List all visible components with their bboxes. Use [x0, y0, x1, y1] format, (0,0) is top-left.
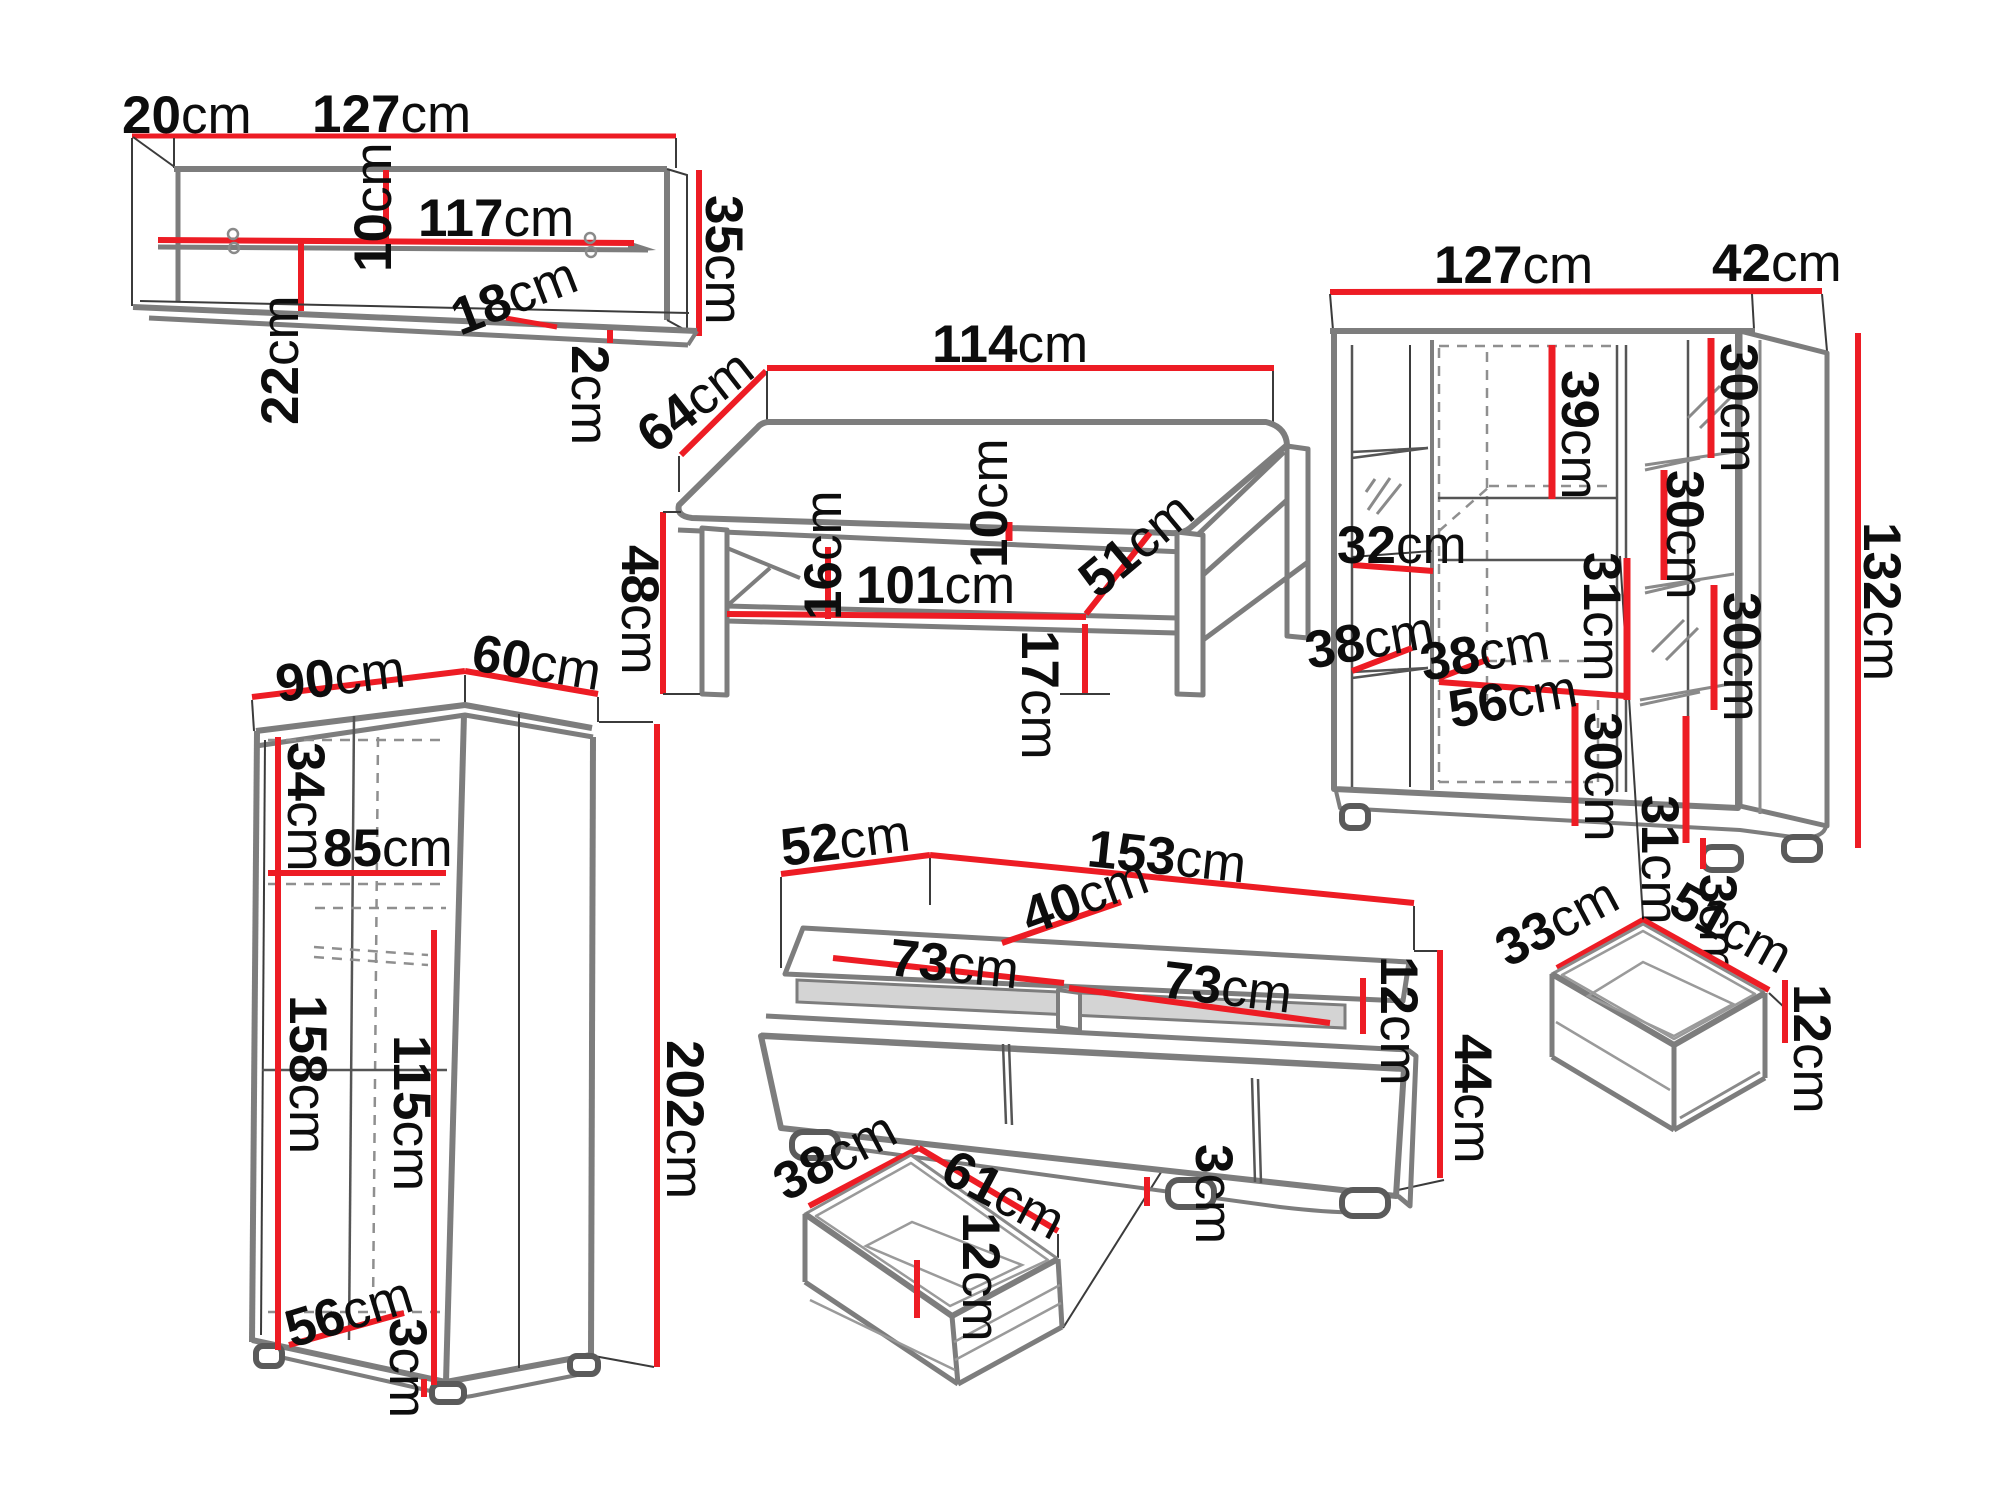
svg-text:117cm: 117cm — [418, 189, 574, 248]
svg-text:30cm: 30cm — [1712, 592, 1771, 722]
svg-text:32cm: 32cm — [1337, 516, 1467, 575]
svg-text:101cm: 101cm — [856, 556, 1015, 615]
svg-text:31cm: 31cm — [1572, 552, 1631, 682]
svg-text:30cm: 30cm — [1655, 470, 1714, 600]
svg-text:39cm: 39cm — [1550, 370, 1609, 500]
svg-text:12cm: 12cm — [951, 1212, 1010, 1342]
svg-text:2cm: 2cm — [560, 345, 619, 445]
svg-text:115cm: 115cm — [382, 1035, 441, 1191]
svg-text:22cm: 22cm — [251, 295, 310, 425]
svg-text:85cm: 85cm — [323, 819, 453, 878]
svg-text:3cm: 3cm — [1184, 1144, 1243, 1244]
svg-text:20cm: 20cm — [122, 86, 252, 145]
svg-text:3cm: 3cm — [378, 1318, 437, 1418]
svg-text:158cm: 158cm — [278, 995, 337, 1154]
svg-text:114cm: 114cm — [932, 315, 1088, 374]
svg-text:12cm: 12cm — [1782, 984, 1841, 1114]
svg-text:48cm: 48cm — [610, 545, 669, 675]
svg-text:202cm: 202cm — [655, 1040, 714, 1199]
svg-text:127cm: 127cm — [1434, 236, 1593, 295]
svg-text:132cm: 132cm — [1852, 522, 1911, 681]
svg-text:10cm: 10cm — [344, 142, 403, 272]
svg-text:35cm: 35cm — [694, 195, 753, 325]
svg-text:30cm: 30cm — [1709, 343, 1768, 473]
svg-text:10cm: 10cm — [960, 438, 1019, 568]
svg-text:12cm: 12cm — [1369, 956, 1428, 1086]
svg-text:16cm: 16cm — [794, 490, 853, 620]
svg-text:127cm: 127cm — [312, 85, 471, 144]
svg-text:30cm: 30cm — [1573, 712, 1632, 842]
svg-text:42cm: 42cm — [1712, 234, 1842, 293]
svg-text:17cm: 17cm — [1010, 630, 1069, 760]
svg-text:44cm: 44cm — [1443, 1034, 1502, 1164]
